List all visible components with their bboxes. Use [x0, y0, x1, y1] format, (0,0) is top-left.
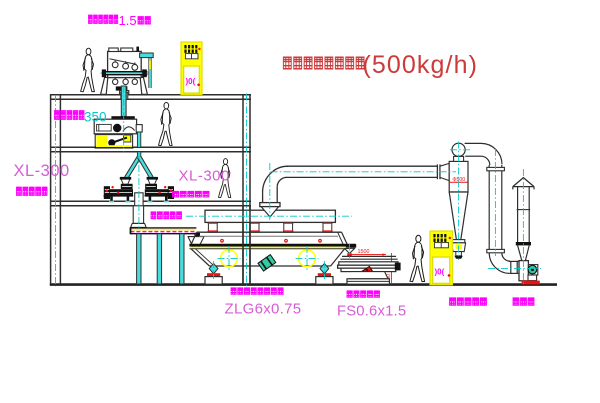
- svg-text:1500: 1500: [358, 249, 370, 255]
- svg-text:XL-300: XL-300: [14, 162, 70, 180]
- svg-text:1.5: 1.5: [119, 13, 137, 28]
- svg-text:FS0.6x1.5: FS0.6x1.5: [337, 304, 406, 320]
- svg-text:)0(: )0(: [435, 267, 445, 276]
- svg-text:350: 350: [84, 110, 107, 125]
- svg-text:)0(: )0(: [186, 77, 196, 86]
- svg-text:(500kg/h): (500kg/h): [363, 51, 479, 79]
- svg-text:XL-300: XL-300: [179, 168, 230, 185]
- svg-text:ZLG6x0.75: ZLG6x0.75: [225, 301, 302, 318]
